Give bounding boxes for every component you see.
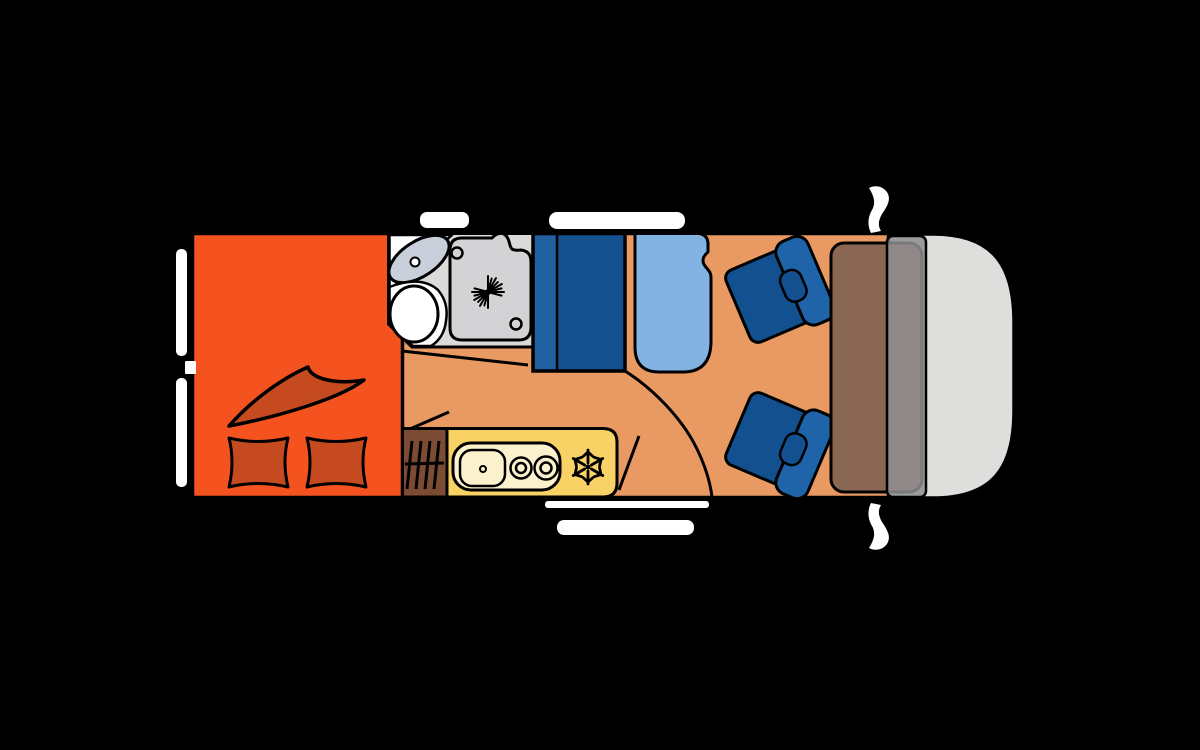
roof-window-mark-right [549, 212, 685, 229]
sink-drain [480, 466, 486, 472]
burner-right-inner [541, 463, 552, 474]
rear-bed [193, 234, 403, 498]
toilet [390, 286, 438, 342]
burner-left-inner [516, 463, 526, 473]
campervan-floorplan [0, 0, 1200, 750]
entry-door-mark [557, 520, 694, 535]
mirror-bottom-icon [868, 503, 888, 550]
entry-door-sill-mark [545, 501, 709, 508]
basin-drain [411, 258, 420, 267]
side-window-mark-upper [176, 249, 187, 356]
side-window-mark-lower [176, 378, 187, 487]
floorplan-canvas [0, 0, 1200, 750]
roof-window-mark-left [420, 212, 469, 228]
dinette-table [635, 234, 711, 373]
mirror-top-icon [868, 186, 888, 233]
window-latch-mark [185, 361, 196, 374]
pillow-left [229, 438, 288, 487]
windshield [887, 236, 926, 497]
pillow-right [307, 438, 366, 487]
shower-fitting-top [452, 248, 463, 259]
shower-fitting-bottom [511, 319, 522, 330]
bench-cushion-strip [535, 236, 556, 370]
